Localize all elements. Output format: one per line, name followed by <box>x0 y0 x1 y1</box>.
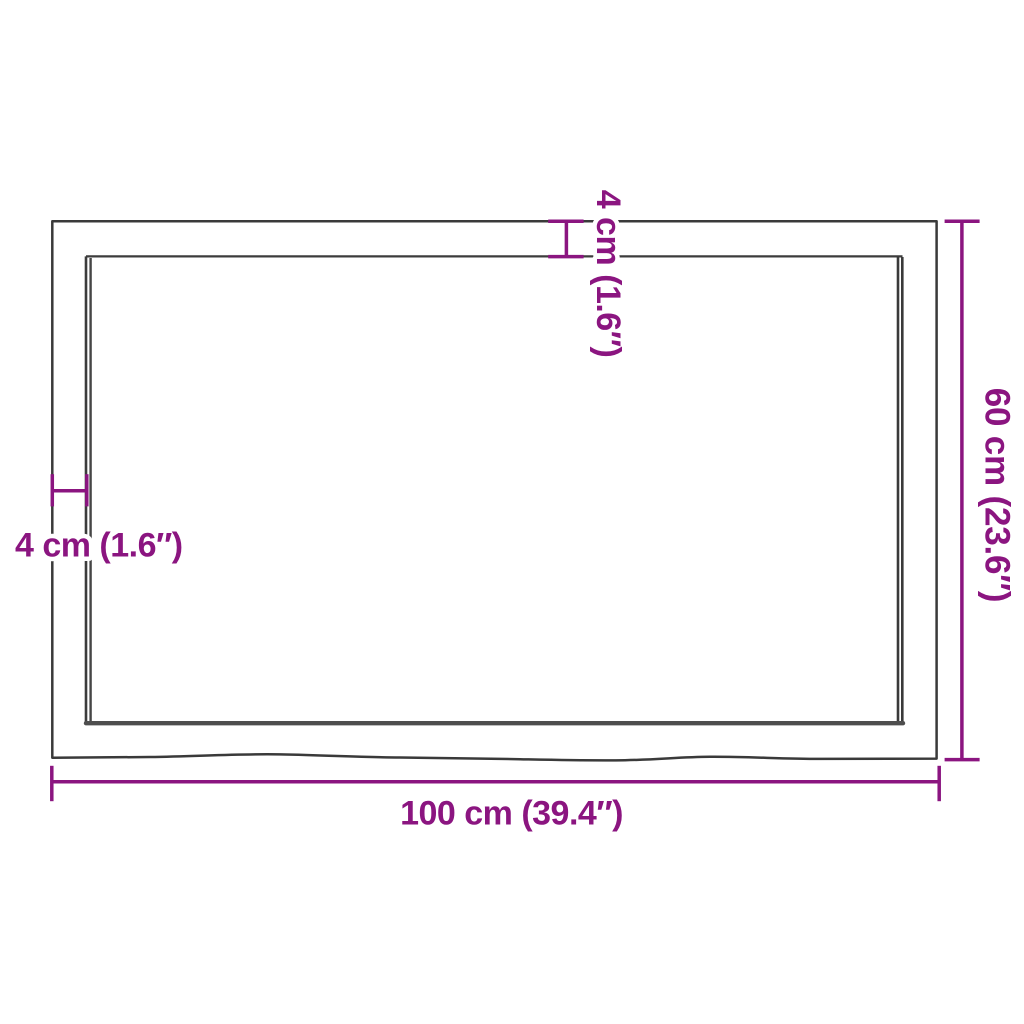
svg-text:100 cm (39.4″): 100 cm (39.4″) <box>400 795 623 833</box>
svg-text:4 cm (1.6″): 4 cm (1.6″) <box>589 190 627 358</box>
svg-text:4 cm (1.6″): 4 cm (1.6″) <box>15 527 183 565</box>
svg-text:60 cm (23.6″): 60 cm (23.6″) <box>977 388 1016 603</box>
